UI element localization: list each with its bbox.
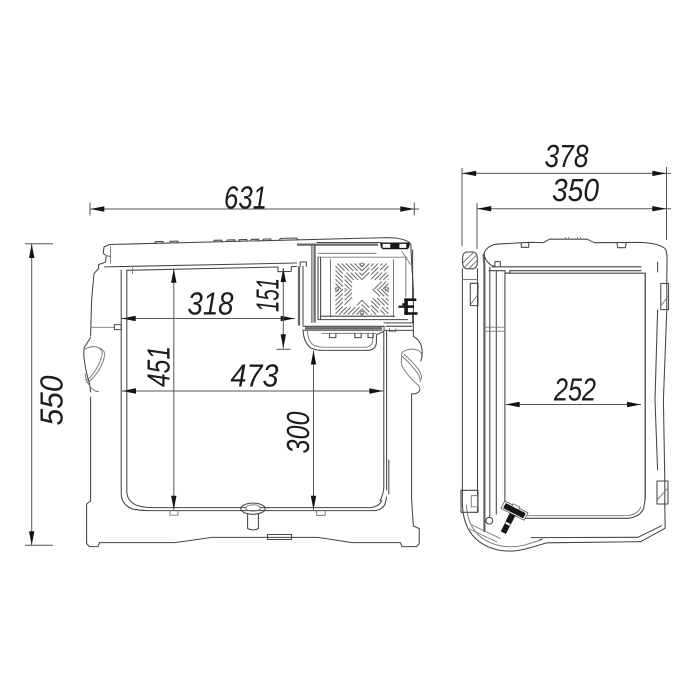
svg-text:378: 378 [545, 138, 589, 174]
svg-text:451: 451 [141, 346, 177, 387]
svg-text:350: 350 [552, 172, 599, 208]
svg-text:300: 300 [280, 411, 316, 453]
svg-text:318: 318 [188, 286, 234, 322]
svg-text:550: 550 [34, 375, 70, 425]
svg-text:631: 631 [224, 180, 267, 216]
svg-text:473: 473 [231, 358, 279, 394]
svg-text:151: 151 [250, 278, 286, 312]
svg-text:252: 252 [553, 372, 596, 408]
